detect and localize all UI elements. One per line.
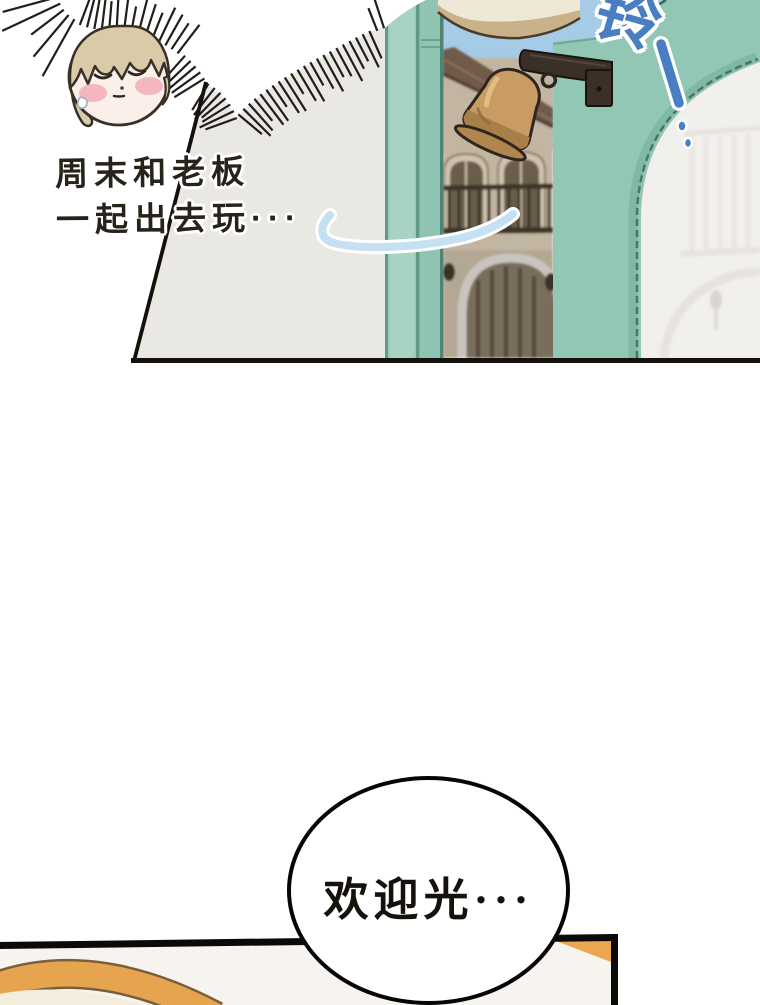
bottom-panel-border-right (611, 934, 618, 1005)
blush-right (135, 77, 163, 95)
speech-bubble-text: 欢迎光··· (323, 853, 533, 928)
comic-page: 周末和老板 一起出去玩··· 铃 欢迎光··· (0, 0, 760, 1005)
mouth (114, 96, 124, 97)
door-frame (385, 0, 444, 358)
chibi-face (69, 26, 169, 126)
nose (120, 86, 124, 90)
sweat-drop (78, 97, 87, 108)
speech-bubble: 欢迎光··· (287, 776, 570, 1005)
panel-border-bottom (131, 358, 760, 363)
